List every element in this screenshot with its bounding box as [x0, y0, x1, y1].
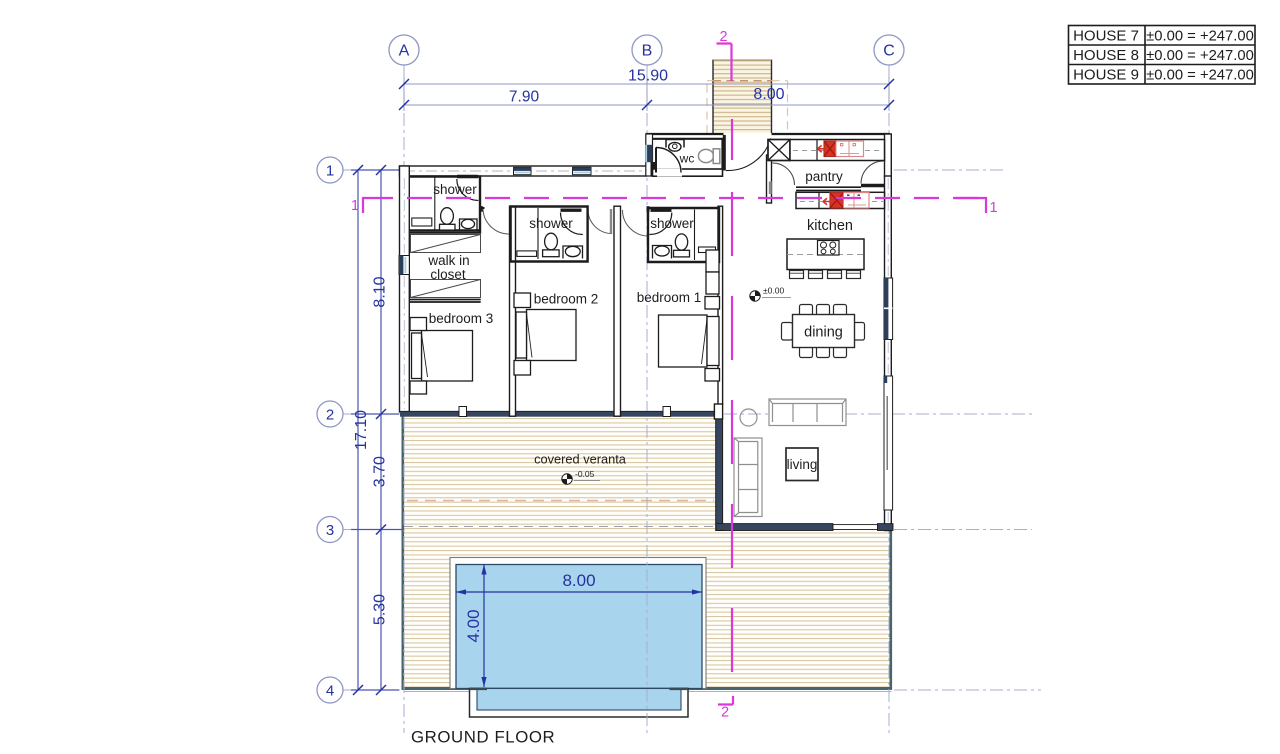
svg-text:-0.05: -0.05 — [575, 469, 595, 479]
svg-text:4.00: 4.00 — [464, 609, 483, 642]
svg-text:B: B — [642, 43, 653, 60]
svg-text:covered veranta: covered veranta — [534, 452, 627, 467]
svg-text:3.70: 3.70 — [372, 456, 389, 487]
svg-text:walk in: walk in — [427, 253, 469, 268]
svg-text:pantry: pantry — [805, 169, 843, 184]
svg-text:HOUSE 9: HOUSE 9 — [1073, 67, 1139, 84]
svg-text:1: 1 — [990, 200, 998, 216]
svg-text:7.90: 7.90 — [509, 89, 540, 106]
svg-text:±0.00 = +247.00: ±0.00 = +247.00 — [1146, 68, 1254, 84]
svg-text:±0.00 = +247.00: ±0.00 = +247.00 — [1146, 48, 1254, 64]
svg-text:wc: wc — [679, 152, 695, 166]
svg-text:A: A — [399, 43, 410, 60]
svg-text:shower: shower — [433, 182, 477, 197]
svg-text:17.10: 17.10 — [353, 410, 370, 450]
svg-text:5.30: 5.30 — [372, 594, 389, 625]
svg-text:15.90: 15.90 — [628, 68, 668, 85]
svg-text:shower: shower — [650, 216, 694, 231]
svg-text:2: 2 — [326, 407, 334, 424]
svg-text:shower: shower — [529, 216, 573, 231]
svg-text:2: 2 — [721, 705, 729, 721]
svg-text:HOUSE 7: HOUSE 7 — [1073, 28, 1139, 45]
svg-text:2: 2 — [719, 29, 727, 45]
svg-text:4: 4 — [326, 683, 334, 700]
svg-text:8.10: 8.10 — [372, 276, 389, 307]
svg-text:kitchen: kitchen — [807, 218, 853, 234]
svg-text:C: C — [883, 43, 895, 60]
svg-text:3: 3 — [326, 522, 334, 539]
svg-text:1: 1 — [326, 163, 334, 180]
svg-text:bedroom 3: bedroom 3 — [429, 311, 494, 326]
svg-text:±0.00 = +247.00: ±0.00 = +247.00 — [1146, 29, 1254, 45]
svg-text:HOUSE 8: HOUSE 8 — [1073, 47, 1139, 64]
svg-text:living: living — [787, 457, 818, 472]
svg-text:bedroom 1: bedroom 1 — [637, 290, 702, 305]
svg-text:dining: dining — [804, 325, 843, 341]
svg-text:closet: closet — [430, 267, 466, 282]
svg-text:GROUND FLOOR: GROUND FLOOR — [411, 728, 555, 747]
svg-text:8.00: 8.00 — [753, 86, 784, 103]
svg-text:±0.00: ±0.00 — [763, 286, 784, 296]
svg-text:8.00: 8.00 — [562, 571, 595, 590]
svg-text:1: 1 — [351, 198, 359, 214]
svg-text:bedroom 2: bedroom 2 — [534, 292, 599, 307]
